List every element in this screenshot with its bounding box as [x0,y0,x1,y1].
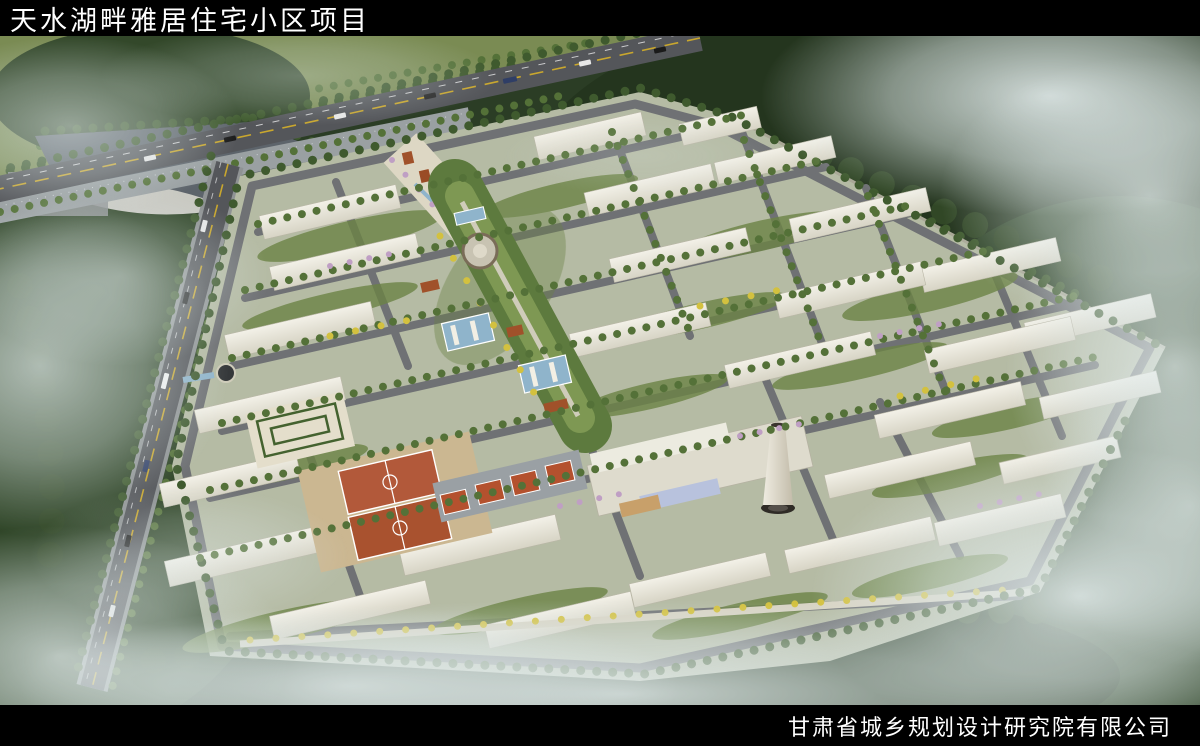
mist-patch [500,116,780,196]
title-bar: 天水湖畔雅居住宅小区项目 [0,0,1200,36]
project-poster: 天水湖畔雅居住宅小区项目 [0,0,1200,746]
aerial-rendering [0,36,1200,705]
project-title: 天水湖畔雅居住宅小区项目 [10,0,370,38]
fountain-center [473,244,487,258]
rendering-viewport [0,36,1200,705]
mist-patch [30,486,350,626]
credit-bar: 甘肃省城乡规划设计研究院有限公司 [0,705,1200,746]
company-name: 甘肃省城乡规划设计研究院有限公司 [788,710,1172,742]
chimney-base [768,505,788,512]
